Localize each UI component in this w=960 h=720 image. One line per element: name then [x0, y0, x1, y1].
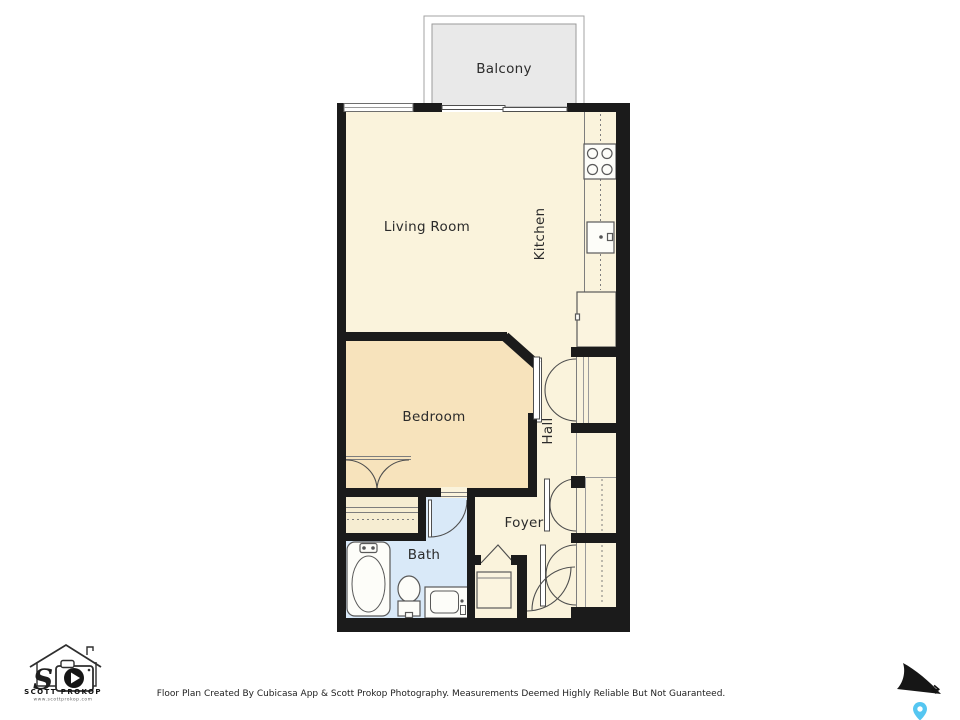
storage-closet-floor — [346, 497, 418, 533]
logo-website: www.scottprokop.com — [33, 698, 92, 703]
stove-icon — [584, 144, 616, 179]
bath-doorway-threshold — [441, 487, 467, 498]
floor-plan-canvas: S Balcony Living Room Kitchen Bedroom Ha… — [0, 0, 960, 720]
bathtub-icon — [347, 542, 390, 616]
bath-door-leaf — [429, 500, 432, 537]
bath-label: Bath — [408, 547, 441, 563]
bathroom-vanity-icon — [425, 587, 468, 618]
kitchen-label: Kitchen — [532, 208, 548, 261]
camera-icon — [56, 661, 93, 692]
location-pin-icon — [913, 702, 927, 720]
bedroom-pocket-door — [534, 357, 540, 419]
foyer-closet-upper-doors — [545, 479, 550, 531]
foyer-closet-lower-doors — [541, 545, 546, 606]
window-top — [344, 104, 413, 112]
logo-name: SCOTT PROKOP — [24, 688, 102, 696]
living-room-label: Living Room — [384, 219, 470, 235]
hall-label: Hall — [540, 417, 556, 444]
floor-plan-drawing: S — [0, 0, 960, 720]
footer-disclaimer: Floor Plan Created By Cubicasa App & Sco… — [157, 689, 726, 699]
refrigerator-icon — [576, 292, 617, 347]
toilet-icon — [398, 576, 420, 618]
foyer-label: Foyer — [505, 515, 544, 531]
kitchen-sink-icon — [587, 222, 614, 253]
bedroom-label: Bedroom — [402, 409, 465, 425]
washer-icon — [477, 572, 511, 608]
balcony-label: Balcony — [476, 61, 532, 77]
